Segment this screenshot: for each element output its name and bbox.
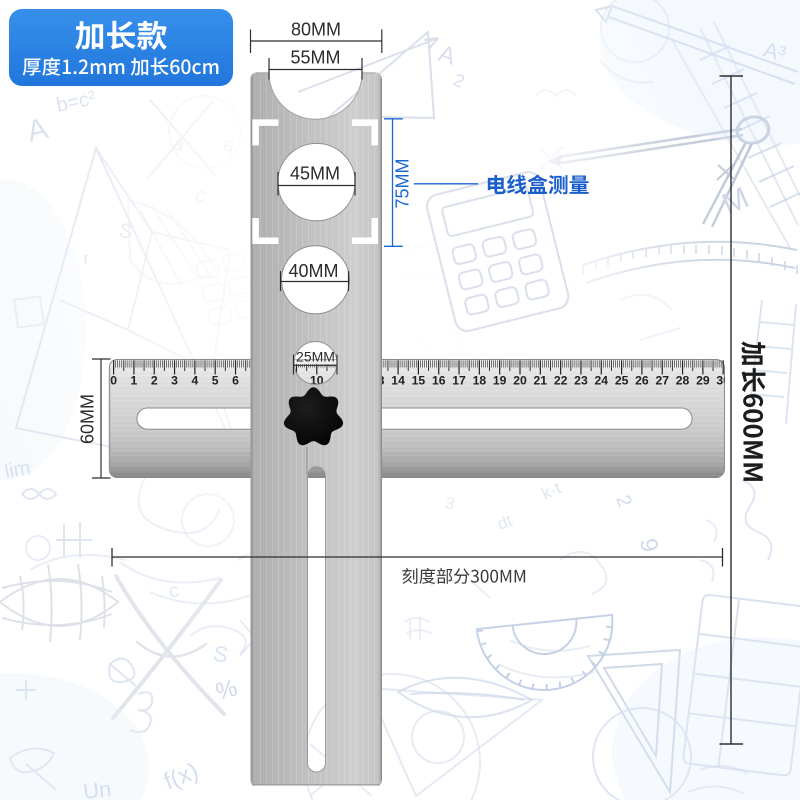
- svg-text:40MM: 40MM: [288, 261, 338, 281]
- svg-text:18: 18: [473, 373, 487, 387]
- svg-text:45MM: 45MM: [290, 164, 340, 184]
- svg-text:75MM: 75MM: [393, 158, 413, 208]
- svg-text:28: 28: [676, 373, 690, 387]
- svg-text:21: 21: [534, 373, 548, 387]
- svg-text:60MM: 60MM: [78, 394, 98, 444]
- svg-text:6: 6: [232, 373, 239, 387]
- svg-text:2: 2: [151, 373, 158, 387]
- svg-text:19: 19: [493, 373, 507, 387]
- svg-text:16: 16: [432, 373, 446, 387]
- svg-text:20: 20: [513, 373, 527, 387]
- svg-text:3: 3: [171, 373, 178, 387]
- svg-text:24: 24: [594, 373, 608, 387]
- svg-text:26: 26: [635, 373, 649, 387]
- svg-text:4: 4: [191, 373, 198, 387]
- svg-text:0: 0: [110, 373, 117, 387]
- svg-text:25: 25: [615, 373, 629, 387]
- svg-text:23: 23: [574, 373, 588, 387]
- svg-text:15: 15: [412, 373, 426, 387]
- svg-text:25MM: 25MM: [296, 349, 335, 365]
- svg-text:14: 14: [391, 373, 405, 387]
- svg-text:22: 22: [554, 373, 568, 387]
- svg-text:27: 27: [655, 373, 669, 387]
- svg-text:55MM: 55MM: [290, 48, 340, 68]
- svg-text:5: 5: [212, 373, 219, 387]
- svg-text:29: 29: [696, 373, 710, 387]
- svg-text:17: 17: [452, 373, 466, 387]
- svg-text:1: 1: [131, 373, 138, 387]
- svg-text:80MM: 80MM: [291, 20, 341, 40]
